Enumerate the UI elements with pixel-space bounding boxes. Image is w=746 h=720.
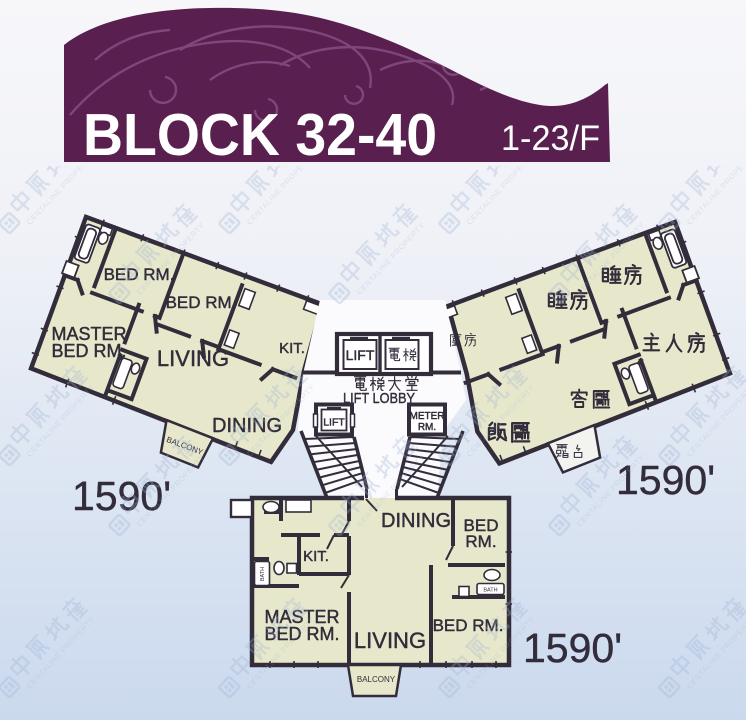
svg-text:LIVING: LIVING <box>354 628 426 653</box>
svg-text:RM.: RM. <box>418 422 436 433</box>
svg-text:DINING: DINING <box>381 510 451 532</box>
svg-text:LIFT: LIFT <box>323 417 345 429</box>
svg-text:BED RM.: BED RM. <box>166 293 237 312</box>
svg-text:RM.: RM. <box>465 532 496 551</box>
svg-text:LIFT: LIFT <box>346 347 375 363</box>
svg-text:BED RM.: BED RM. <box>51 341 126 361</box>
svg-text:KIT.: KIT. <box>303 548 329 565</box>
svg-text:BATH: BATH <box>483 588 497 594</box>
svg-text:1-23/F: 1-23/F <box>501 119 600 158</box>
svg-text:BATH: BATH <box>260 567 266 581</box>
svg-text:BALCONY: BALCONY <box>357 675 396 684</box>
svg-text:BLOCK 32-40: BLOCK 32-40 <box>83 102 437 168</box>
svg-text:1590': 1590' <box>523 625 622 671</box>
svg-text:KIT.: KIT. <box>279 340 305 357</box>
svg-text:LIVING: LIVING <box>157 346 229 371</box>
svg-text:METER: METER <box>410 411 445 422</box>
